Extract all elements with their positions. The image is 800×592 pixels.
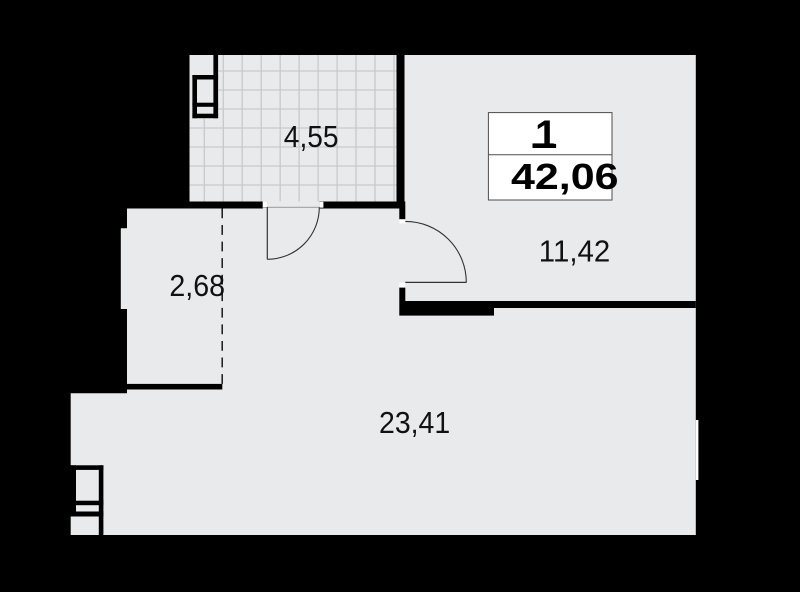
svg-text:4,55: 4,55 xyxy=(284,120,339,154)
svg-text:23,41: 23,41 xyxy=(379,406,450,440)
svg-text:2,68: 2,68 xyxy=(169,269,225,303)
svg-text:1: 1 xyxy=(535,113,557,157)
svg-text:11,42: 11,42 xyxy=(539,235,610,269)
svg-text:42,06: 42,06 xyxy=(511,156,619,197)
